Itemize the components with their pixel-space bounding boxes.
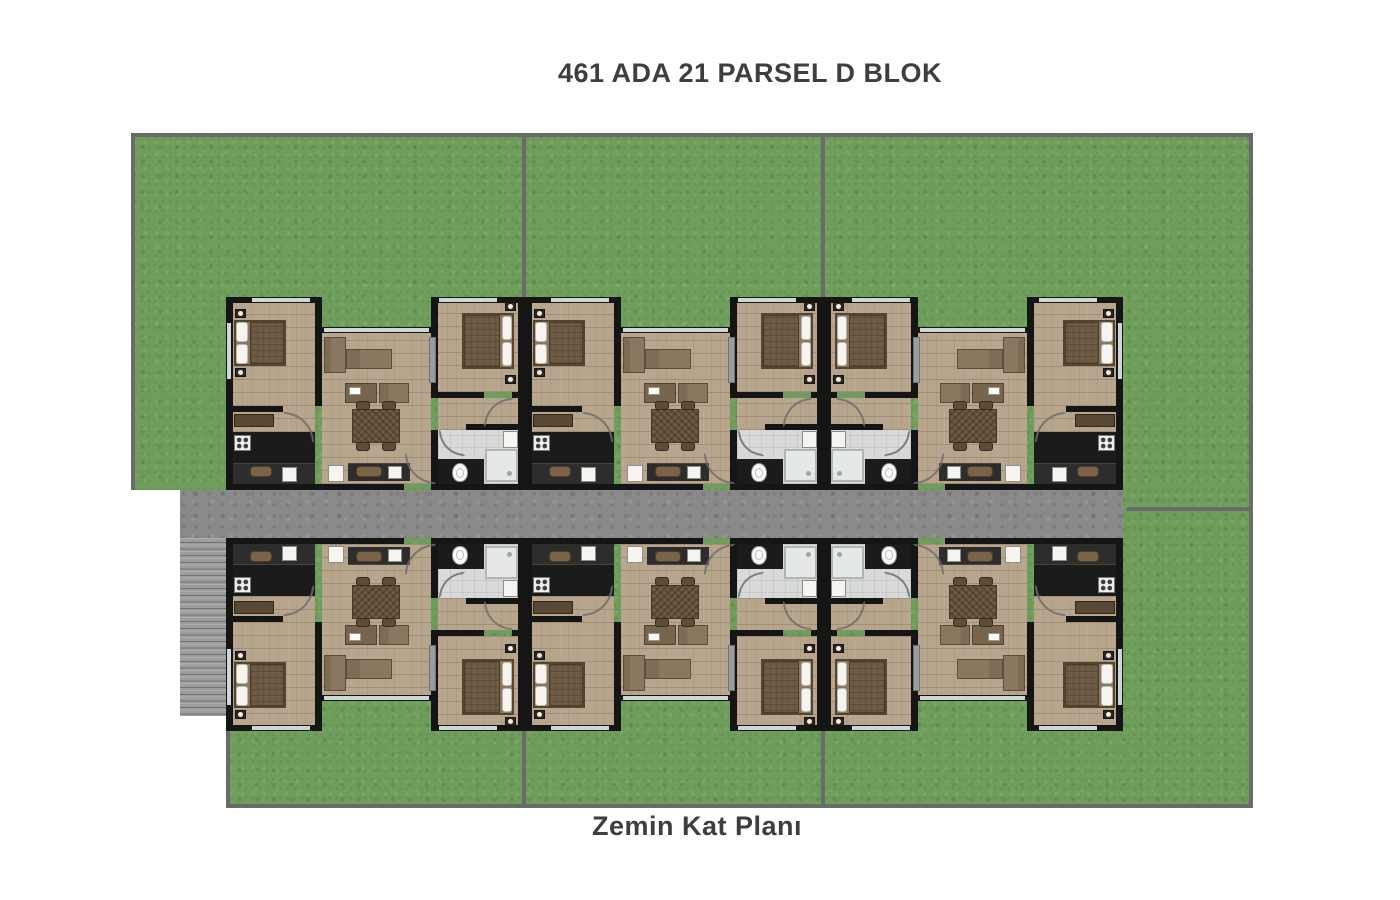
pillow	[1101, 322, 1113, 342]
nightstand	[505, 644, 516, 653]
duvet	[849, 661, 885, 713]
pillow	[236, 322, 248, 342]
sofa	[957, 659, 1003, 679]
cabinet	[533, 414, 573, 427]
stove	[1098, 435, 1115, 451]
chair	[681, 442, 695, 451]
pillow	[535, 664, 547, 684]
wall	[824, 630, 837, 636]
chair	[655, 577, 669, 586]
duvet	[549, 322, 583, 364]
window	[920, 696, 1025, 700]
pillow	[801, 688, 811, 712]
nightstand	[505, 717, 516, 726]
shower	[831, 546, 864, 579]
apartment-unit	[525, 297, 824, 490]
refrigerator	[627, 546, 643, 563]
window	[623, 696, 728, 700]
nightstand	[534, 309, 545, 318]
wall	[226, 616, 283, 622]
refrigerator	[1005, 546, 1021, 563]
pillow	[1101, 344, 1113, 364]
corner-sofa	[324, 337, 346, 373]
wall	[525, 297, 532, 490]
chair	[356, 577, 370, 586]
chair	[953, 442, 967, 451]
duvet	[464, 315, 500, 367]
cutting-board	[549, 466, 571, 477]
pillow	[535, 322, 547, 342]
wall	[226, 406, 283, 412]
apartment-unit	[525, 538, 824, 731]
dining-table	[352, 585, 400, 619]
remote	[349, 633, 361, 641]
nightstand	[1103, 651, 1114, 660]
cabinet	[234, 414, 274, 427]
wall	[525, 538, 532, 731]
chair	[953, 577, 967, 586]
wall	[512, 630, 525, 636]
pillow	[236, 686, 248, 706]
wall	[730, 630, 783, 636]
sliding-door	[913, 337, 920, 383]
site-plan: 461 ADA 21 PARSEL D BLOK Zemin Kat Planı	[0, 0, 1400, 900]
duvet	[250, 322, 284, 364]
duvet	[763, 315, 799, 367]
cutting-board	[250, 551, 272, 562]
window	[1118, 649, 1122, 705]
tv	[947, 466, 961, 479]
tv	[388, 549, 402, 562]
wall	[431, 392, 484, 398]
decor-tray	[655, 551, 681, 562]
chair	[356, 401, 370, 410]
tv	[687, 549, 701, 562]
corner-sofa	[623, 655, 645, 691]
toilet	[452, 463, 468, 482]
wall	[525, 484, 703, 490]
shower	[784, 546, 817, 579]
chair	[979, 442, 993, 451]
chair	[979, 401, 993, 410]
kitchen-sink	[282, 467, 297, 482]
washbasin	[503, 580, 518, 597]
pillow	[502, 316, 512, 340]
loveseat	[678, 383, 708, 403]
washbasin	[831, 580, 846, 597]
pillow	[801, 316, 811, 340]
kitchen-sink	[1052, 467, 1067, 482]
remote	[648, 633, 660, 641]
pillow	[502, 662, 512, 686]
kitchen-counter	[233, 463, 315, 484]
sofa	[957, 349, 1003, 369]
chair	[356, 442, 370, 451]
sliding-door	[429, 645, 436, 691]
pillow	[837, 688, 847, 712]
pillow	[837, 662, 847, 686]
nightstand	[833, 644, 844, 653]
chair	[953, 618, 967, 627]
window	[738, 726, 796, 730]
cabinet	[234, 601, 274, 614]
stove	[234, 577, 251, 593]
remote	[648, 387, 660, 395]
tv	[947, 549, 961, 562]
chair	[382, 577, 396, 586]
loveseat	[678, 625, 708, 645]
pillow	[535, 686, 547, 706]
chair	[681, 618, 695, 627]
nightstand	[534, 368, 545, 377]
window	[551, 726, 609, 730]
apartment-unit	[824, 538, 1123, 731]
sliding-door	[429, 337, 436, 383]
wall	[525, 616, 582, 622]
stove	[533, 435, 550, 451]
window	[738, 298, 796, 302]
dining-table	[651, 585, 699, 619]
kitchen-sink	[581, 467, 596, 482]
toilet	[751, 463, 767, 482]
window	[1039, 298, 1097, 302]
shower	[485, 546, 518, 579]
window	[852, 726, 910, 730]
pillow	[502, 342, 512, 366]
wall	[512, 392, 525, 398]
toilet	[751, 546, 767, 565]
wall	[614, 622, 621, 731]
cabinet	[533, 601, 573, 614]
window	[252, 298, 310, 302]
nightstand	[833, 375, 844, 384]
wall	[865, 630, 918, 636]
sofa	[346, 349, 392, 369]
decor-tray	[655, 466, 681, 477]
sliding-door	[728, 337, 735, 383]
kitchen-counter	[532, 463, 614, 484]
nightstand	[804, 717, 815, 726]
decor-tray	[967, 551, 993, 562]
nightstand	[833, 302, 844, 311]
wall	[865, 392, 918, 398]
dining-table	[949, 585, 997, 619]
nightstand	[1103, 368, 1114, 377]
decor-tray	[356, 466, 382, 477]
sofa	[645, 659, 691, 679]
chair	[979, 577, 993, 586]
chair	[382, 442, 396, 451]
washbasin	[831, 431, 846, 448]
pillow	[801, 662, 811, 686]
washbasin	[802, 580, 817, 597]
loveseat	[379, 383, 409, 403]
wall	[226, 484, 404, 490]
window	[920, 328, 1025, 332]
sliding-door	[728, 645, 735, 691]
sofa	[346, 659, 392, 679]
cabinet	[1075, 601, 1115, 614]
nightstand	[505, 375, 516, 384]
wall	[614, 297, 621, 406]
remote	[349, 387, 361, 395]
duvet	[1065, 664, 1099, 706]
chair	[681, 401, 695, 410]
kitchen-counter	[233, 544, 315, 565]
window	[623, 328, 728, 332]
nightstand	[804, 302, 815, 311]
toilet	[452, 546, 468, 565]
apartment-building	[0, 0, 1400, 900]
corner-sofa	[623, 337, 645, 373]
refrigerator	[328, 546, 344, 563]
nightstand	[833, 717, 844, 726]
kitchen-counter	[532, 544, 614, 565]
pillow	[236, 344, 248, 364]
remote	[988, 633, 1000, 641]
washbasin	[802, 431, 817, 448]
shower	[485, 449, 518, 482]
chair	[655, 442, 669, 451]
wall	[315, 297, 322, 406]
nightstand	[235, 309, 246, 318]
wall	[811, 392, 824, 398]
loveseat	[940, 383, 970, 403]
chair	[953, 401, 967, 410]
dining-table	[352, 409, 400, 443]
pillow	[535, 344, 547, 364]
cutting-board	[549, 551, 571, 562]
wall	[1066, 406, 1123, 412]
pillow	[1101, 664, 1113, 684]
wall	[730, 392, 783, 398]
decor-tray	[967, 466, 993, 477]
stove	[1098, 577, 1115, 593]
kitchen-counter	[1034, 463, 1116, 484]
chair	[979, 618, 993, 627]
nightstand	[235, 368, 246, 377]
kitchen-counter	[1034, 544, 1116, 565]
washbasin	[503, 431, 518, 448]
duvet	[849, 315, 885, 367]
corner-sofa	[1003, 337, 1025, 373]
corner-sofa	[1003, 655, 1025, 691]
wall	[735, 484, 824, 490]
window	[227, 649, 231, 705]
dining-table	[651, 409, 699, 443]
toilet	[881, 546, 897, 565]
cutting-board	[1077, 551, 1099, 562]
stove	[533, 577, 550, 593]
apartment-unit	[226, 297, 525, 490]
loveseat	[379, 625, 409, 645]
apartment-unit	[824, 297, 1123, 490]
wall	[431, 630, 484, 636]
wall	[436, 484, 525, 490]
remote	[988, 387, 1000, 395]
window	[324, 696, 429, 700]
duvet	[1065, 322, 1099, 364]
nightstand	[534, 651, 545, 660]
decor-tray	[356, 551, 382, 562]
pillow	[236, 664, 248, 684]
refrigerator	[1005, 465, 1021, 482]
chair	[681, 577, 695, 586]
window	[227, 323, 231, 379]
toilet	[881, 463, 897, 482]
wall	[1066, 616, 1123, 622]
wall	[1027, 297, 1034, 406]
cutting-board	[250, 466, 272, 477]
nightstand	[235, 651, 246, 660]
chair	[356, 618, 370, 627]
sofa	[645, 349, 691, 369]
pillow	[837, 316, 847, 340]
chair	[382, 618, 396, 627]
window	[1039, 726, 1097, 730]
pillow	[502, 688, 512, 712]
duvet	[464, 661, 500, 713]
wall	[315, 622, 322, 731]
nightstand	[534, 710, 545, 719]
window	[852, 298, 910, 302]
tv	[388, 466, 402, 479]
nightstand	[804, 375, 815, 384]
wall	[525, 406, 582, 412]
window	[324, 328, 429, 332]
wall	[811, 630, 824, 636]
duvet	[250, 664, 284, 706]
nightstand	[235, 710, 246, 719]
pillow	[837, 342, 847, 366]
cutting-board	[1077, 466, 1099, 477]
cabinet	[1075, 414, 1115, 427]
dining-table	[949, 409, 997, 443]
chair	[382, 401, 396, 410]
apartment-unit	[226, 538, 525, 731]
loveseat	[940, 625, 970, 645]
shower	[784, 449, 817, 482]
duvet	[763, 661, 799, 713]
shower	[831, 449, 864, 482]
kitchen-sink	[1052, 546, 1067, 561]
refrigerator	[627, 465, 643, 482]
wall	[824, 484, 913, 490]
kitchen-sink	[282, 546, 297, 561]
duvet	[549, 664, 583, 706]
window	[439, 298, 497, 302]
stove	[234, 435, 251, 451]
tv	[687, 466, 701, 479]
window	[551, 298, 609, 302]
nightstand	[804, 644, 815, 653]
refrigerator	[328, 465, 344, 482]
window	[1118, 323, 1122, 379]
chair	[655, 401, 669, 410]
pillow	[801, 342, 811, 366]
pillow	[1101, 686, 1113, 706]
chair	[655, 618, 669, 627]
wall	[1027, 622, 1034, 731]
window	[439, 726, 497, 730]
window	[252, 726, 310, 730]
kitchen-sink	[581, 546, 596, 561]
nightstand	[505, 302, 516, 311]
corner-sofa	[324, 655, 346, 691]
wall	[945, 484, 1123, 490]
nightstand	[1103, 710, 1114, 719]
nightstand	[1103, 309, 1114, 318]
sliding-door	[913, 645, 920, 691]
